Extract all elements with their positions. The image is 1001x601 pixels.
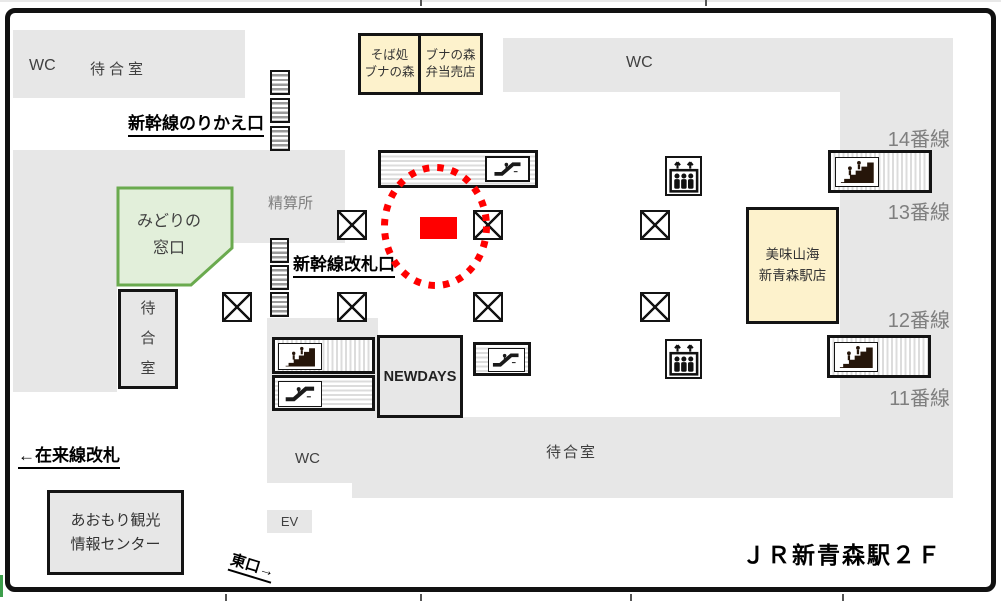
newdays-label: NEWDAYS xyxy=(384,369,457,385)
ticket-gate-icon xyxy=(270,292,289,317)
stairs-strip-platform-bottom xyxy=(827,335,931,378)
waiting-room-left-box: 待 合 室 xyxy=(118,289,178,389)
tourist-info-line1: あおもり観光 xyxy=(70,509,160,533)
waiting-room-top-left-label: 待合室 xyxy=(90,58,147,79)
wc-top-left-label: WC xyxy=(29,57,56,75)
ev-box: EV xyxy=(267,510,312,533)
station-map-screenshot: WC 待合室 新幹線のりかえ口 そば処 ブナの森 ブナの森 弁当売店 WC 精算… xyxy=(0,0,1001,601)
midori-window-line2: 窓口 xyxy=(153,235,185,262)
ev-label: EV xyxy=(281,514,298,529)
fare-adjustment-label: 精算所 xyxy=(268,192,313,213)
escalator-icon xyxy=(488,348,525,372)
restaurant-line1: 美味山海 xyxy=(766,245,820,265)
bento-shop-box: ブナの森 弁当売店 xyxy=(418,33,483,95)
pillar-x-icon xyxy=(473,292,503,322)
grid-tick xyxy=(705,0,707,6)
soba-shop-line2: ブナの森 xyxy=(364,64,414,81)
area-left-column xyxy=(13,150,117,392)
ticket-gate-icon xyxy=(270,238,289,263)
bento-shop-line2: 弁当売店 xyxy=(425,64,475,81)
restaurant-box: 美味山海 新青森駅店 xyxy=(746,207,839,324)
soba-shop-line1: そば処 xyxy=(371,47,409,64)
tourist-info-line2: 情報センター xyxy=(70,533,160,557)
escalator-icon xyxy=(278,381,322,407)
pillar-x-icon xyxy=(640,210,670,240)
current-location-marker xyxy=(420,217,457,239)
wc-top-center-label: WC xyxy=(626,54,653,72)
area-wc-top-center xyxy=(503,38,953,92)
escalator-strip-left xyxy=(272,375,375,411)
stairs-strip-platform-top xyxy=(828,150,932,193)
stairs-icon xyxy=(834,342,878,372)
midori-window-line1: みどりの xyxy=(137,208,201,235)
map-title: ＪＲ新青森駅２Ｆ xyxy=(620,536,942,570)
grid-tick xyxy=(630,594,632,601)
midori-window-label: みどりの 窓口 xyxy=(117,205,221,265)
elevator-icon xyxy=(665,339,702,379)
ticket-gate-icon xyxy=(270,126,290,151)
stairs-icon xyxy=(835,157,879,187)
waiting-left-char2: 合 xyxy=(140,324,155,354)
ticket-gate-icon xyxy=(270,265,289,290)
waiting-left-char3: 室 xyxy=(140,354,155,384)
pillar-x-icon xyxy=(337,292,367,322)
platform-12-label: 12番線 xyxy=(874,304,950,333)
grid-tick xyxy=(225,594,227,601)
wc-bottom-label: WC xyxy=(295,450,320,467)
escalator-box-center xyxy=(473,342,531,376)
pillar-x-icon xyxy=(640,292,670,322)
excel-gridline-top xyxy=(0,0,1001,2)
pillar-x-icon xyxy=(337,210,367,240)
elevator-icon xyxy=(665,156,702,196)
waiting-left-char1: 待 xyxy=(140,294,155,324)
ticket-gate-icon xyxy=(270,70,290,95)
ticket-gate-icon xyxy=(270,98,290,123)
platform-13-label: 13番線 xyxy=(874,196,950,225)
grid-tick xyxy=(420,594,422,601)
grid-tick xyxy=(842,594,844,601)
pillar-x-icon xyxy=(222,292,252,322)
area-waiting-bottom xyxy=(352,417,953,498)
newdays-shop-box: NEWDAYS xyxy=(377,335,463,418)
excel-selection-mark xyxy=(0,575,3,597)
conventional-line-gate-label: ←在来線改札 xyxy=(18,441,120,469)
restaurant-line2: 新青森駅店 xyxy=(759,266,827,286)
bento-shop-line1: ブナの森 xyxy=(425,47,475,64)
grid-tick xyxy=(420,0,422,6)
stairs-icon xyxy=(278,343,322,370)
waiting-room-bottom-label: 待合室 xyxy=(546,441,597,462)
platform-11-label: 11番線 xyxy=(874,382,950,411)
soba-shop-box: そば処 ブナの森 xyxy=(358,33,421,95)
platform-14-label: 14番線 xyxy=(874,123,950,152)
shinkansen-transfer-gate-label: 新幹線のりかえ口 xyxy=(128,109,264,137)
tourist-info-center-box: あおもり観光 情報センター xyxy=(47,490,184,575)
stairs-strip-left xyxy=(272,337,375,374)
